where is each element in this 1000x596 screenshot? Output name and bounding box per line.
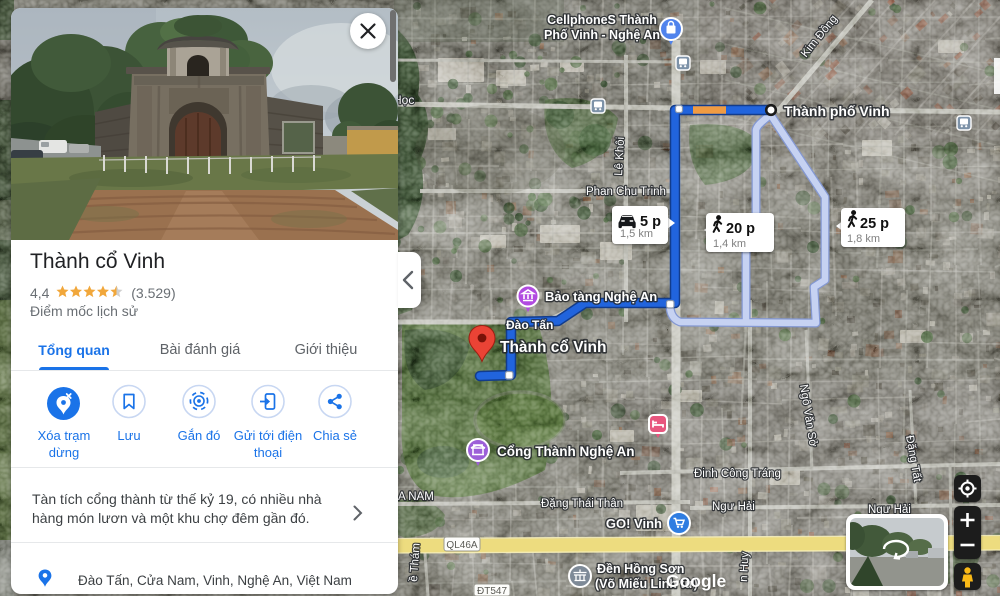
svg-text:n Huy: n Huy: [738, 551, 752, 582]
svg-text:Đặng Thái Thân: Đặng Thái Thân: [541, 498, 623, 510]
svg-text:Lê Khôi: Lê Khôi: [613, 137, 627, 177]
svg-text:1,5 km: 1,5 km: [620, 228, 653, 240]
svg-text:25 p: 25 p: [860, 216, 889, 232]
svg-text:Thành phố Vinh: Thành phố Vinh: [784, 103, 890, 119]
svg-text:Ngư Hải: Ngư Hải: [712, 501, 755, 513]
svg-text:1,4 km: 1,4 km: [713, 238, 746, 250]
svg-text:Cổng Thành Nghệ An: Cổng Thành Nghệ An: [497, 444, 634, 459]
svg-text:Thành cổ Vinh: Thành cổ Vinh: [500, 339, 607, 356]
svg-text:Bảo tàng Nghệ An: Bảo tàng Nghệ An: [545, 289, 657, 304]
svg-text:QL46A: QL46A: [446, 540, 477, 551]
svg-text:20 p: 20 p: [726, 221, 755, 237]
svg-text:CellphoneS Thành: CellphoneS Thành: [547, 13, 657, 27]
svg-text:Đào Tấn: Đào Tấn: [506, 318, 553, 332]
svg-text:Phố Vinh - Nghệ An: Phố Vinh - Nghệ An: [544, 28, 660, 42]
svg-text:Phan Chu Trinh: Phan Chu Trinh: [586, 186, 666, 198]
svg-text:Google: Google: [666, 571, 727, 591]
svg-text:Đinh Công Tráng: Đinh Công Tráng: [694, 468, 781, 480]
svg-text:ĐT547: ĐT547: [477, 586, 507, 596]
svg-text:1,8 km: 1,8 km: [847, 233, 880, 245]
svg-text:A NAM: A NAM: [398, 491, 434, 503]
svg-text:GO! Vinh: GO! Vinh: [606, 516, 662, 531]
